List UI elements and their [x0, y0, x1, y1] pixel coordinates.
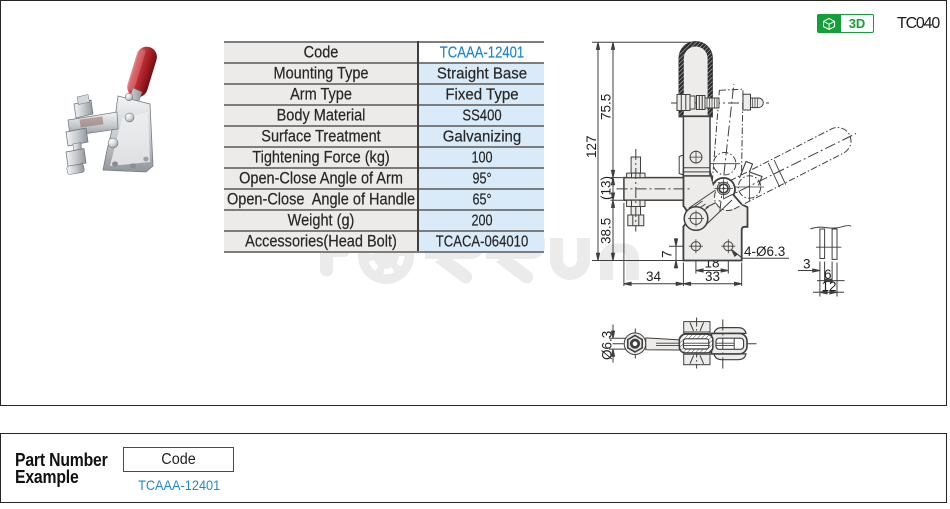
- svg-text:4-Ø6.3: 4-Ø6.3: [744, 244, 785, 259]
- svg-text:34: 34: [646, 269, 662, 284]
- svg-text:3: 3: [803, 257, 811, 272]
- svg-text:(13): (13): [599, 176, 614, 200]
- svg-text:75.5: 75.5: [599, 94, 614, 120]
- svg-text:33: 33: [705, 269, 720, 284]
- svg-text:Ø6.3: Ø6.3: [600, 331, 615, 360]
- svg-text:7: 7: [660, 250, 675, 258]
- svg-text:12: 12: [822, 279, 837, 294]
- svg-text:127: 127: [584, 135, 599, 158]
- svg-text:38.5: 38.5: [599, 218, 614, 244]
